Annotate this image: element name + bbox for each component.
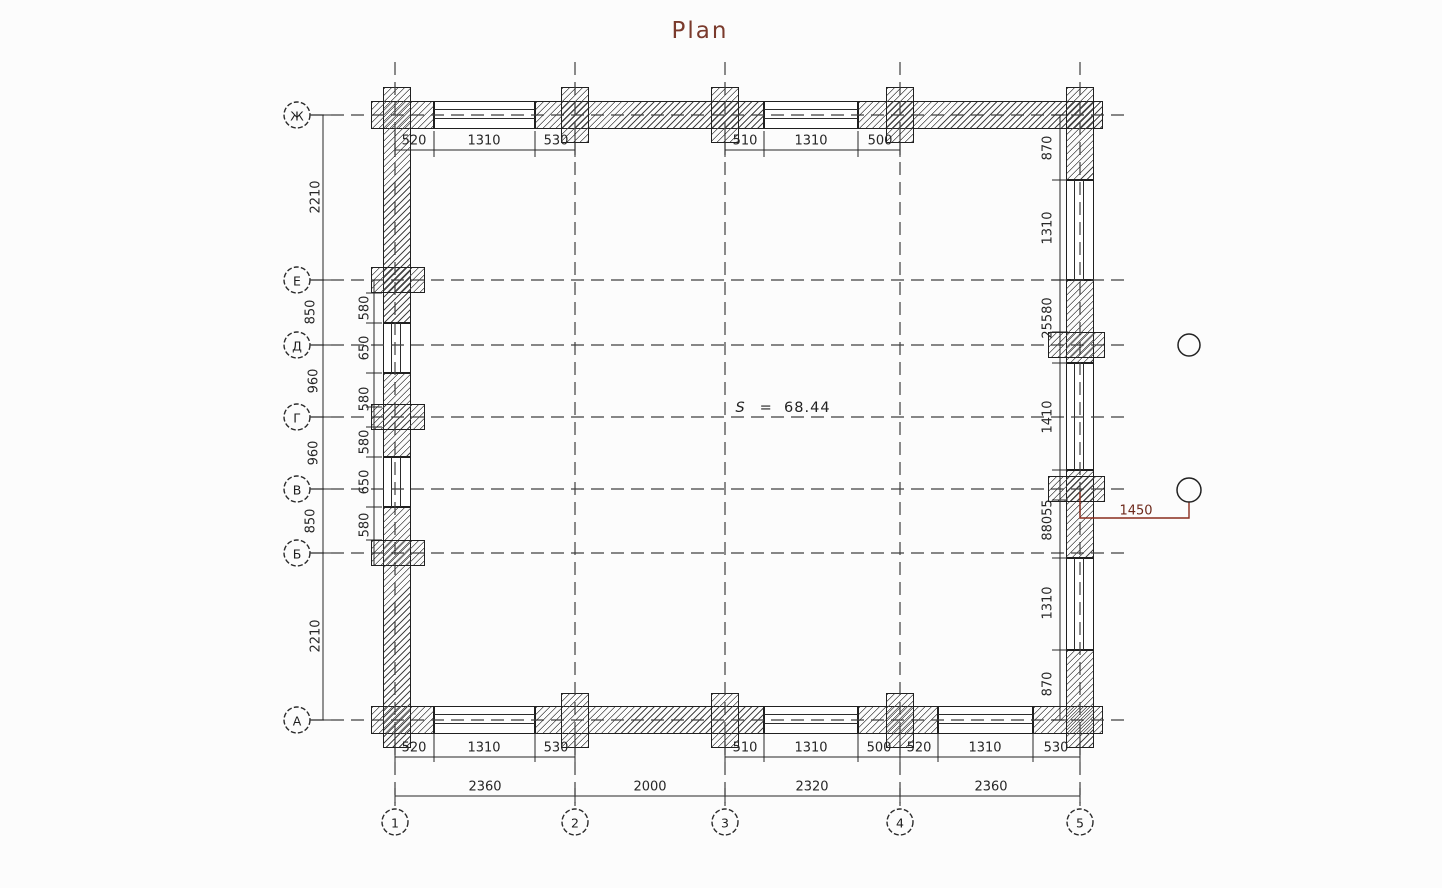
marker-circle xyxy=(1177,478,1201,502)
wall-segment xyxy=(1066,650,1094,748)
pilaster xyxy=(371,404,425,430)
pilaster xyxy=(371,540,425,566)
axis-col-label: 3 xyxy=(721,816,729,831)
pilaster xyxy=(1048,332,1105,358)
window-opening xyxy=(434,706,535,734)
dim-label: 1310 xyxy=(1041,211,1056,244)
dim-label: 850 xyxy=(304,300,319,325)
window-opening xyxy=(1066,363,1094,470)
pilaster xyxy=(561,693,589,748)
top-dimension-labels: 520 1310 530 510 1310 500 xyxy=(402,134,893,149)
dim-label: 960 xyxy=(307,369,322,394)
pilaster xyxy=(711,693,739,748)
dim-label: 580 xyxy=(358,430,373,455)
pilaster xyxy=(886,87,914,143)
dimension-ticks xyxy=(310,115,1080,803)
dim-label: 870 xyxy=(1041,672,1056,697)
dim-label: 2320 xyxy=(795,780,828,795)
area-value: = 68.44 xyxy=(760,400,831,416)
dim-label: 1310 xyxy=(968,741,1001,756)
axis-col-label: 4 xyxy=(896,816,904,831)
dim-label: 1310 xyxy=(794,134,827,149)
overall-dimension-labels: 2360 2000 2320 2360 xyxy=(468,780,1007,795)
dim-label: 2000 xyxy=(633,780,666,795)
axis-row-label: Г xyxy=(293,411,301,426)
dim-label: 960 xyxy=(307,441,322,466)
axis-row-label: А xyxy=(293,714,302,729)
axis-row-label: Б xyxy=(293,547,302,562)
dim-label: 2210 xyxy=(309,619,324,652)
area-symbol: S xyxy=(735,400,745,416)
dim-label: 850 xyxy=(304,509,319,534)
axis-row-label: Е xyxy=(293,274,301,289)
window-opening xyxy=(434,101,535,129)
axis-col-label: 5 xyxy=(1076,816,1084,831)
drawing-title: Plan xyxy=(672,18,729,44)
dim-label: 580 xyxy=(358,296,373,321)
dim-label: 1310 xyxy=(467,741,500,756)
axis-row-label: В xyxy=(293,483,302,498)
marker-circle xyxy=(1178,334,1200,356)
dim-label: 1310 xyxy=(467,134,500,149)
pilaster xyxy=(561,87,589,143)
dim-label: 650 xyxy=(358,336,373,361)
dim-label: 530 xyxy=(1044,741,1069,756)
left-outer-dimension-labels: 2210 850 960 960 850 2210 xyxy=(304,180,324,652)
dim-label: 650 xyxy=(358,470,373,495)
dim-label: 2210 xyxy=(309,180,324,213)
dim-label: 2360 xyxy=(468,780,501,795)
dim-label: 580 xyxy=(358,513,373,538)
row-axis-bubbles: Ж Е Д Г В Б А xyxy=(284,102,310,733)
axis-col-label: 2 xyxy=(571,816,579,831)
axis-row-label: Ж xyxy=(290,109,304,124)
dim-label: 1310 xyxy=(1041,586,1056,619)
pilaster xyxy=(1048,476,1105,502)
dim-label: 2360 xyxy=(974,780,1007,795)
window-opening xyxy=(1066,558,1094,650)
window-opening xyxy=(383,323,411,373)
window-opening xyxy=(1066,180,1094,280)
column-axis-bubbles: 1 2 3 4 5 xyxy=(382,809,1093,835)
dim-label: 88055 xyxy=(1041,499,1056,540)
window-opening xyxy=(383,457,411,507)
dim-label: 1410 xyxy=(1041,400,1056,433)
area-annotation: S= 68.44 xyxy=(735,400,830,416)
pilaster xyxy=(711,87,739,143)
leader-dim-label: 1450 xyxy=(1119,504,1152,519)
pilaster xyxy=(886,693,914,748)
right-inner-dimension-labels: 870 1310 25580 1410 88055 1310 870 xyxy=(1041,136,1056,697)
dimension-lines xyxy=(323,115,1080,796)
axis-col-label: 1 xyxy=(391,816,399,831)
wall-segment xyxy=(1066,87,1094,180)
axis-row-label: Д xyxy=(292,339,302,354)
window-opening xyxy=(938,706,1033,734)
pilaster xyxy=(371,267,425,293)
dim-label: 870 xyxy=(1041,136,1056,161)
window-opening xyxy=(764,101,858,129)
window-opening xyxy=(764,706,858,734)
dim-label: 1310 xyxy=(794,741,827,756)
